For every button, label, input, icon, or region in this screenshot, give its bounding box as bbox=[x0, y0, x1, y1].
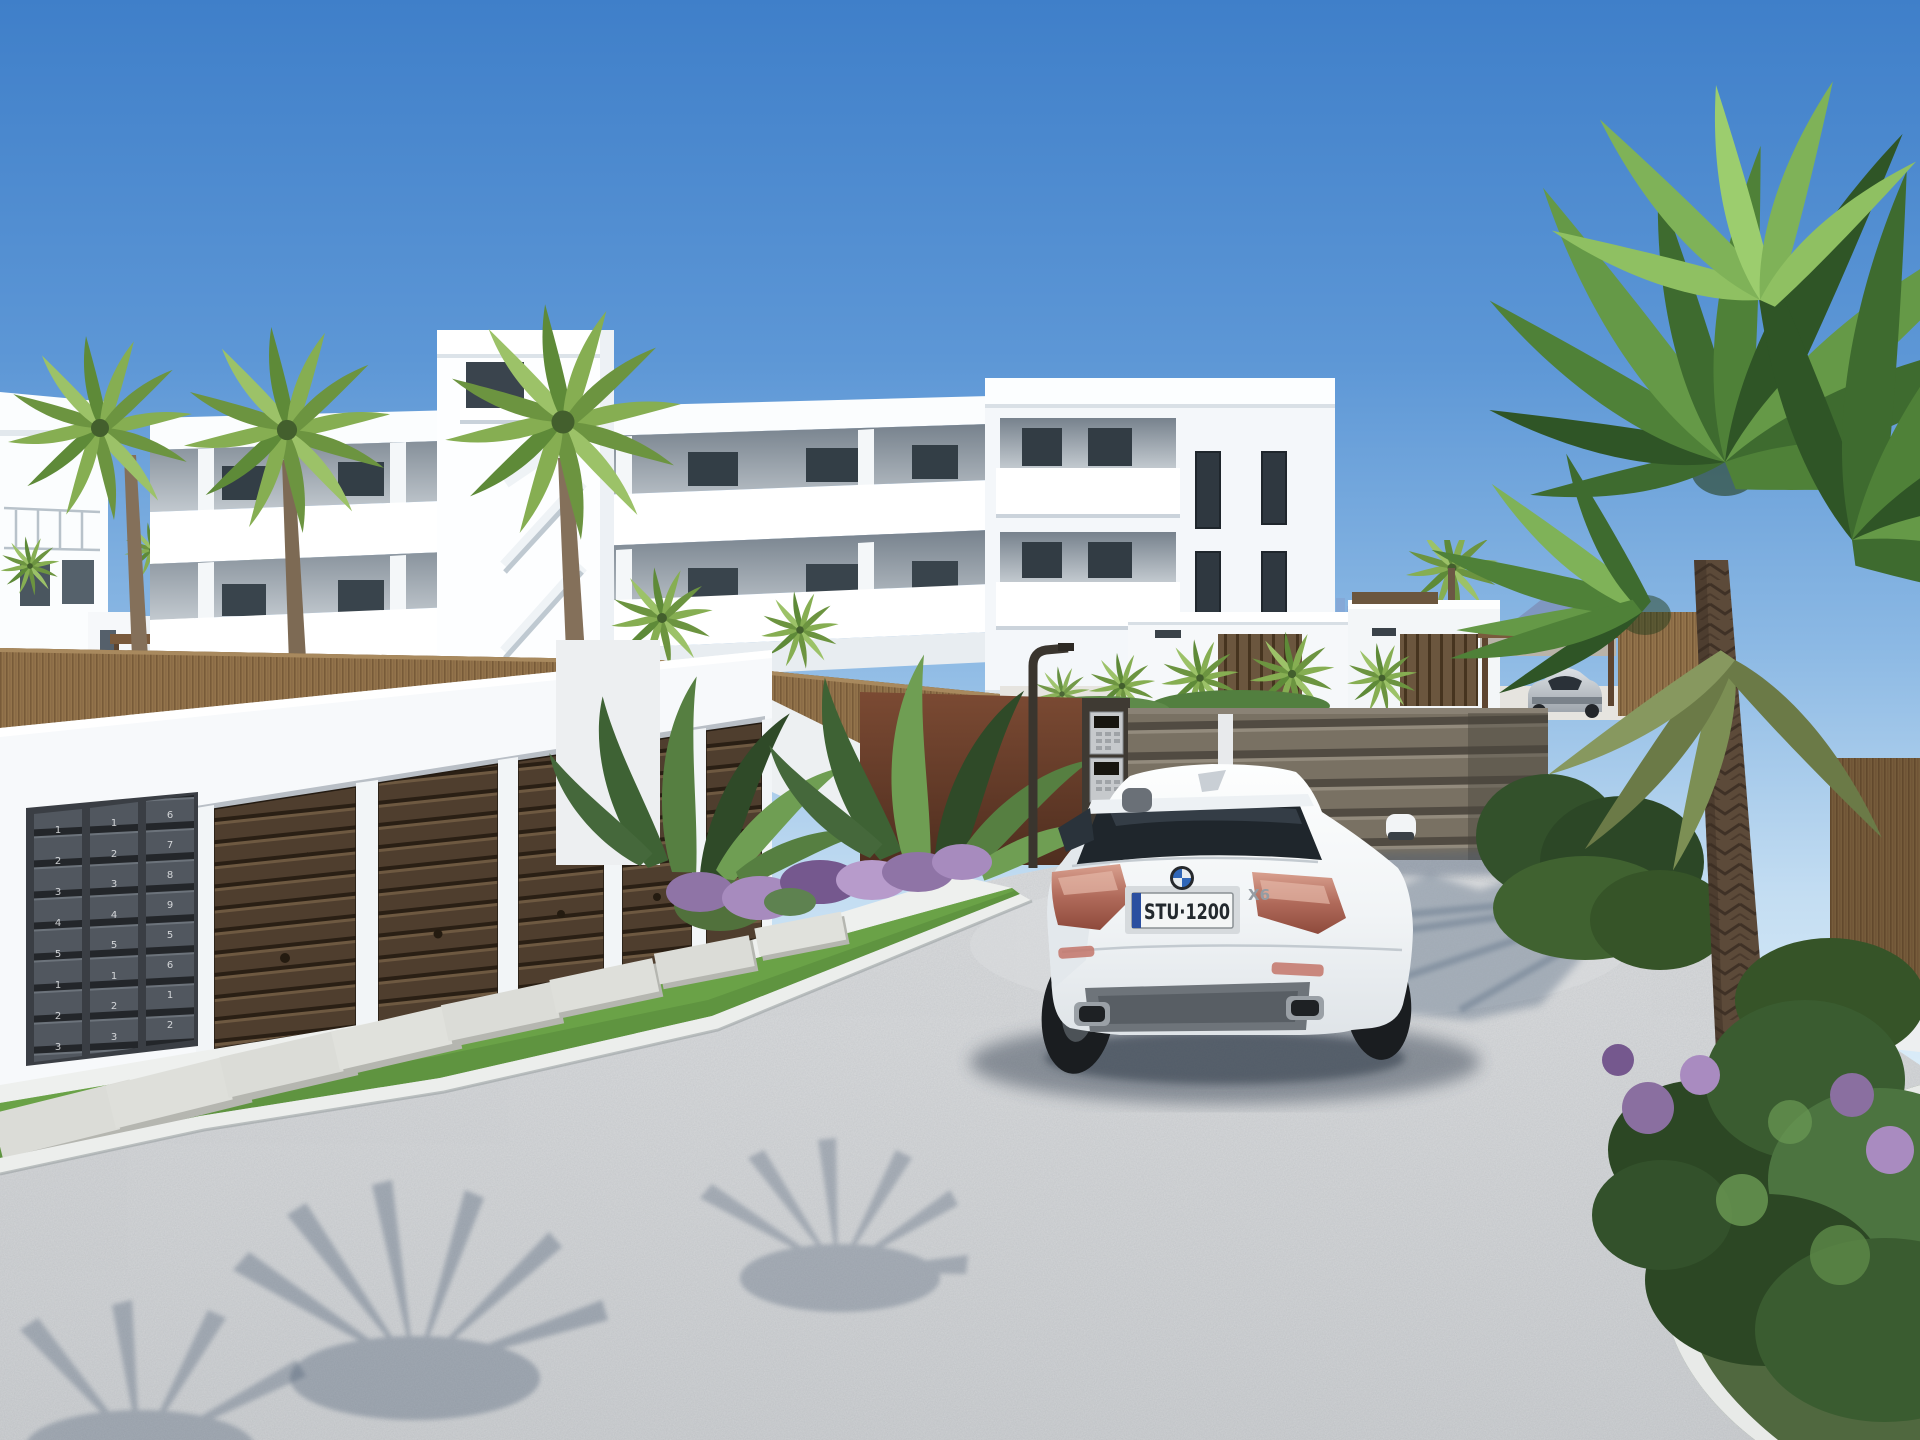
mailbox-number: 2 bbox=[111, 1001, 117, 1012]
mailbox-panel: 1 2 3 4 5 1 2 3 1 2 3 4 5 1 2 3 6 7 8 9 … bbox=[26, 792, 198, 1066]
mailbox-number: 4 bbox=[111, 910, 117, 921]
mailbox-number: 1 bbox=[111, 818, 117, 829]
mailbox-number: 4 bbox=[55, 918, 61, 929]
mailbox-number: 1 bbox=[55, 980, 61, 991]
mailbox-number: 3 bbox=[111, 879, 117, 890]
model-badge: X6 bbox=[1248, 886, 1270, 904]
garage-door-1 bbox=[214, 787, 356, 1049]
mailbox-number: 6 bbox=[167, 960, 173, 971]
mailbox-number: 6 bbox=[167, 810, 173, 821]
mailbox-column bbox=[34, 809, 82, 1062]
plate-text: STU·1200 bbox=[1144, 900, 1230, 924]
mailbox-number: 1 bbox=[167, 990, 173, 1001]
mailbox-number: 9 bbox=[167, 900, 173, 911]
mailbox-number: 1 bbox=[111, 971, 117, 982]
bmw-roundel bbox=[1170, 866, 1194, 890]
mailbox-number: 5 bbox=[55, 949, 61, 960]
license-plate: STU·1200 bbox=[1125, 886, 1240, 934]
plate-eu-band bbox=[1132, 893, 1141, 928]
mailbox-number: 3 bbox=[111, 1032, 117, 1043]
mailbox-number: 2 bbox=[111, 849, 117, 860]
garage-door-2 bbox=[378, 764, 498, 1023]
mailbox-number: 2 bbox=[55, 1011, 61, 1022]
mailbox-number: 2 bbox=[55, 856, 61, 867]
left-building-window bbox=[62, 560, 94, 604]
mailbox-column bbox=[90, 802, 138, 1054]
mailbox-number: 8 bbox=[167, 870, 173, 881]
mailbox-number: 3 bbox=[55, 1042, 61, 1053]
mailbox-number: 3 bbox=[55, 887, 61, 898]
mailbox-number: 2 bbox=[167, 1020, 173, 1031]
mailbox-column bbox=[146, 795, 194, 1046]
mailbox-number: 7 bbox=[167, 840, 173, 851]
render-image: 1 2 3 4 5 1 2 3 1 2 3 4 5 1 2 3 6 7 8 9 … bbox=[0, 0, 1920, 1440]
villa-garage-door bbox=[1400, 634, 1478, 706]
car-bumper-diffuser bbox=[1074, 982, 1324, 1032]
mailbox-number: 1 bbox=[55, 825, 61, 836]
intercom-keypad bbox=[1090, 712, 1123, 754]
mailbox-number: 5 bbox=[167, 930, 173, 941]
mailbox-number: 5 bbox=[111, 940, 117, 951]
